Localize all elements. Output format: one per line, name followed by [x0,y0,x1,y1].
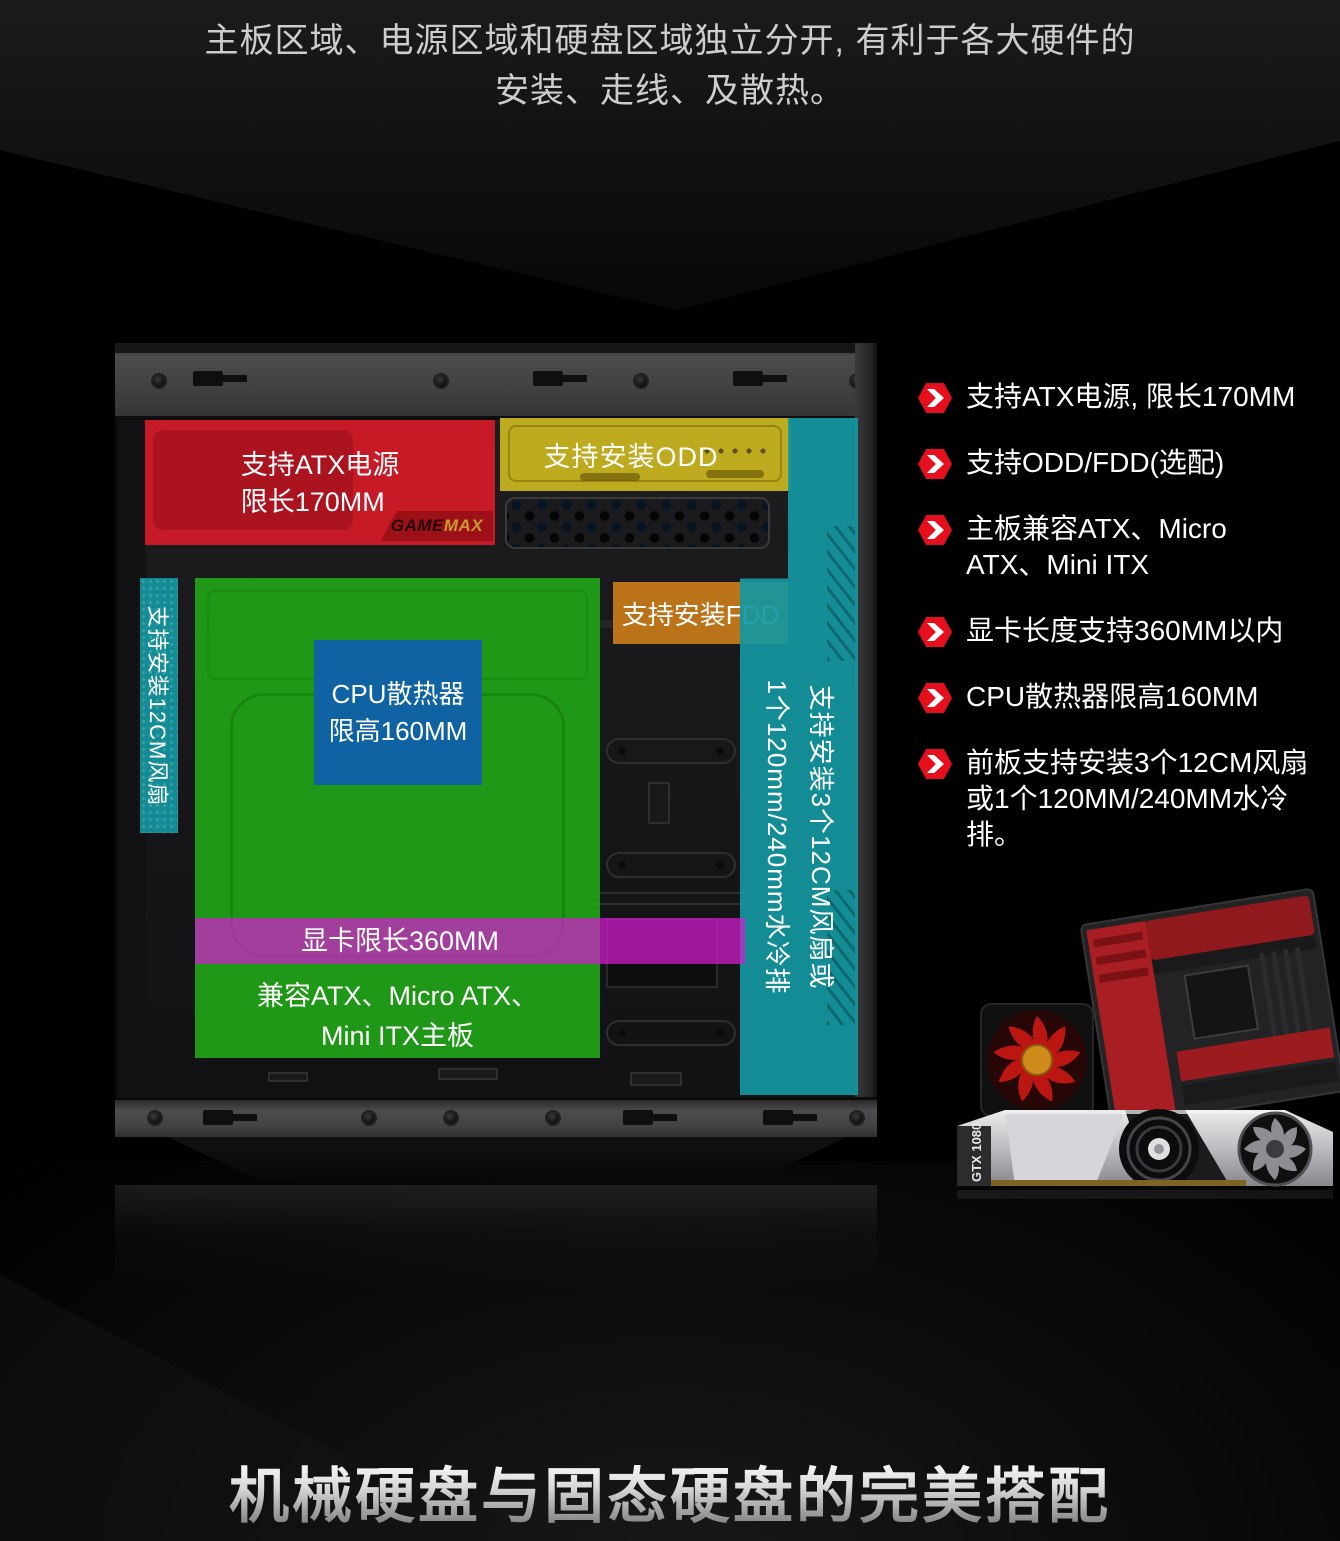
pc-case-diagram: 支持ATX电源 限长170MM GAMEMAX 支持安装ODD 兼容ATX、Mi… [115,343,877,1183]
arrow-bullet-icon [918,617,952,647]
clip-detail [623,1110,653,1125]
clip-detail [763,1110,793,1125]
feature-item: 主板兼容ATX、Micro ATX、Mini ITX [918,511,1310,583]
screw-detail [149,1112,161,1124]
psu-label-line1: 支持ATX电源 [241,447,400,484]
clip-detail [733,371,763,386]
arrow-bullet-icon [918,683,952,713]
header-text: 主板区域、电源区域和硬盘区域独立分开, 有利于各大硬件的 安装、走线、及散热。 [0,16,1340,116]
case-base [115,1137,877,1181]
cable-cutout-detail [606,738,736,764]
case-front-panel [855,343,877,1137]
arrow-bullet-icon [918,383,952,413]
header-line2: 安装、走线、及散热。 [0,66,1340,116]
screw-detail [435,375,447,387]
gamemax-logo-max: MAX [444,516,483,536]
clip-detail [533,371,563,386]
odd-region-label: 支持安装ODD [544,435,719,474]
arrow-bullet-icon [918,515,952,545]
cable-cutout-detail [606,852,736,878]
screw-detail [363,1112,375,1124]
front-fan-label: 支持安装3个12CM风扇或 1个120mm/240mm水冷排 [755,679,843,994]
feature-text: CPU散热器限高160MM [966,679,1258,715]
gpu-clearance-label: 显卡限长360MM [195,918,605,964]
chevron-right-icon [927,521,944,539]
screw-detail [635,375,647,387]
feature-item: CPU散热器限高160MM [918,679,1310,715]
region-odd: 支持安装ODD [500,418,790,491]
cpu-socket [1185,966,1258,1039]
punchout-detail [648,782,670,824]
header-line1: 主板区域、电源区域和硬盘区域独立分开, 有利于各大硬件的 [0,16,1340,66]
region-cpu-cooler: CPU散热器 限高160MM [314,640,482,785]
feature-item: 支持ATX电源, 限长170MM [918,379,1310,415]
case-top-rail [115,343,877,420]
region-left-fan: 支持安装12CM风扇 [140,578,178,833]
feature-item: 支持ODD/FDD(选配) [918,445,1310,481]
psu-label-line2: 限长170MM [241,484,400,521]
motherboard-label-line2: Mini ITX主板 [195,1016,600,1056]
gpu-open-fan [1239,1113,1311,1185]
region-gpu-clearance: 显卡限长360MM [195,918,745,964]
gamemax-logo: GAMEMAX [381,511,493,541]
chevron-right-icon [927,623,944,641]
chevron-right-icon [927,455,944,473]
motherboard-graphic [1080,888,1340,1127]
odd-bay-bar [580,473,640,481]
chevron-right-icon [927,689,944,707]
front-fan-label-line2: 1个120mm/240mm水冷排 [755,679,799,994]
arrow-bullet-icon [918,749,952,779]
gamemax-logo-game: GAME [391,516,444,536]
punchout-detail [630,1072,682,1086]
psu-region-label: 支持ATX电源 限长170MM [241,447,400,521]
region-psu: 支持ATX电源 限长170MM GAMEMAX [145,420,495,545]
drive-bay-vents [505,497,770,549]
punchout-detail [268,1072,308,1082]
case-reflection [115,1185,877,1315]
feature-text: 显卡长度支持360MM以内 [966,613,1283,649]
gpu-graphic: GTX 1080 [957,1109,1333,1199]
gpu-barrel-fan [1119,1109,1199,1189]
motherboard-region-label: 兼容ATX、Micro ATX、 Mini ITX主板 [195,976,600,1056]
front-fan-label-line1: 支持安装3个12CM风扇或 [799,679,843,994]
case-bottom-rail [115,1097,877,1137]
chevron-right-icon [927,389,944,407]
feature-text: 前板支持安装3个12CM风扇或1个120MM/240MM水冷排。 [966,745,1310,853]
page: 主板区域、电源区域和硬盘区域独立分开, 有利于各大硬件的 安装、走线、及散热。 [0,0,1340,1541]
cpu-label-line2: 限高160MM [329,713,468,750]
red-fan-graphic [981,1004,1093,1116]
screw-detail [851,1112,863,1124]
clip-detail [203,1110,233,1125]
clip-detail [193,371,223,386]
gpu-model-label: GTX 1080 [969,1123,984,1182]
feature-item: 显卡长度支持360MM以内 [918,613,1310,649]
feature-list: 支持ATX电源, 限长170MM 支持ODD/FDD(选配) 主板兼容ATX、M… [918,379,1310,883]
hardware-graphic: GTX 1080 [945,888,1340,1203]
cpu-label-line1: CPU散热器 [332,676,465,713]
cable-cutout-detail [606,1020,736,1046]
feature-item: 前板支持安装3个12CM风扇或1个120MM/240MM水冷排。 [918,745,1310,853]
punchout-detail [438,1068,498,1080]
left-fan-label: 支持安装12CM风扇 [143,605,175,806]
footer-title: 机械硬盘与固态硬盘的完美搭配 [0,1448,1340,1535]
motherboard-label-line1: 兼容ATX、Micro ATX、 [195,976,600,1016]
feature-text: 支持ODD/FDD(选配) [966,445,1224,481]
arrow-bullet-icon [918,449,952,479]
screw-detail [445,1112,457,1124]
screw-detail [547,1112,559,1124]
chevron-right-icon [927,755,944,773]
hardware-photo: GTX 1080 [945,888,1340,1203]
screw-detail [153,375,165,387]
feature-text: 支持ATX电源, 限长170MM [966,379,1295,415]
feature-text: 主板兼容ATX、Micro ATX、Mini ITX [966,511,1310,583]
slot-detail [586,892,756,905]
